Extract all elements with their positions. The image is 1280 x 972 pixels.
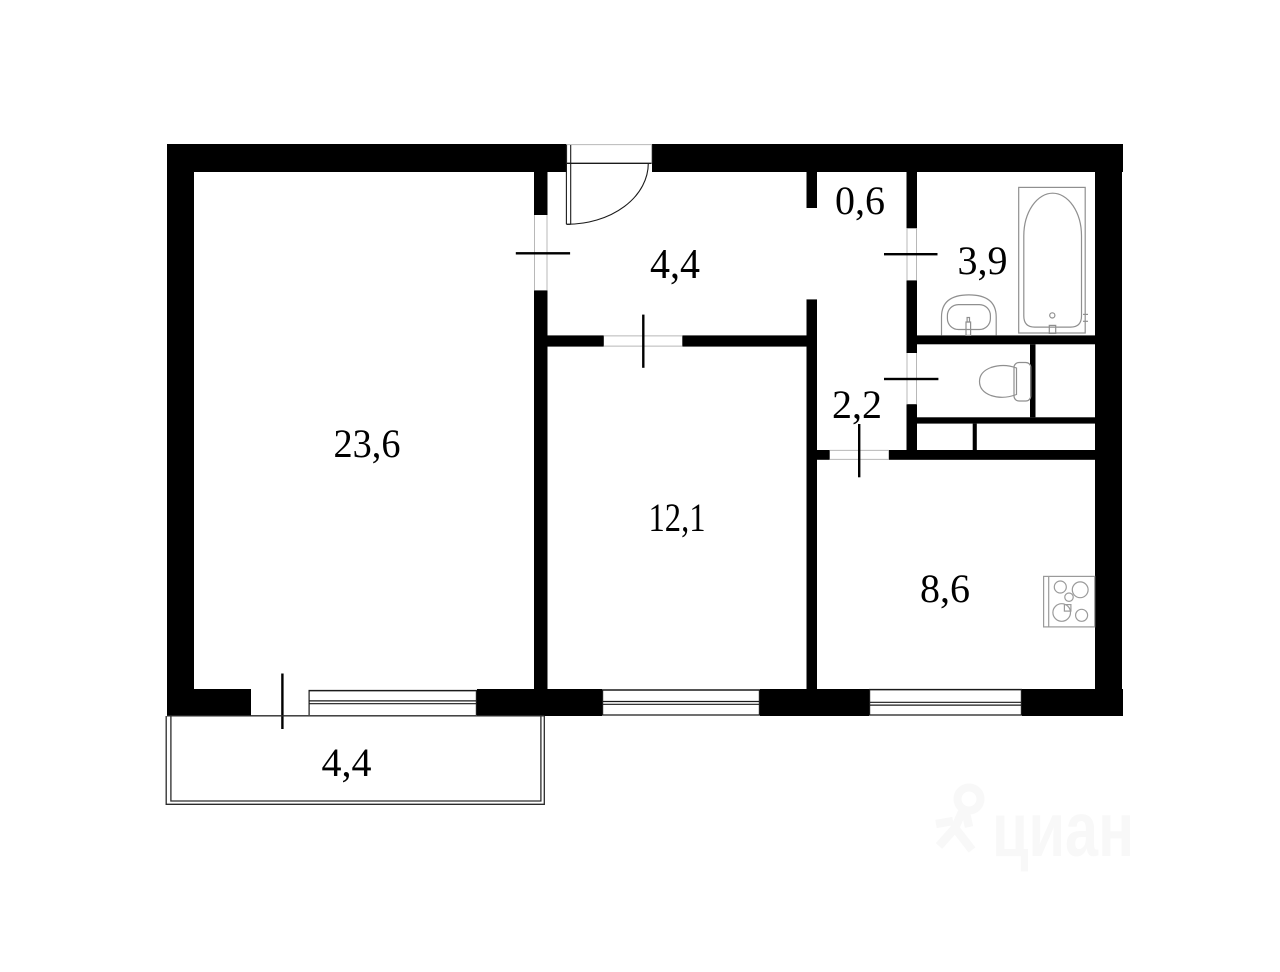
svg-text:12,1: 12,1 [649,495,706,540]
svg-text:0,6: 0,6 [835,178,885,223]
svg-text:8,6: 8,6 [920,566,970,611]
svg-text:2,2: 2,2 [832,382,882,427]
svg-text:4,4: 4,4 [650,242,700,288]
svg-text:3,9: 3,9 [958,238,1008,283]
svg-text:циан: циан [992,787,1134,873]
svg-text:23,6: 23,6 [334,421,401,466]
svg-text:4,4: 4,4 [322,740,372,785]
